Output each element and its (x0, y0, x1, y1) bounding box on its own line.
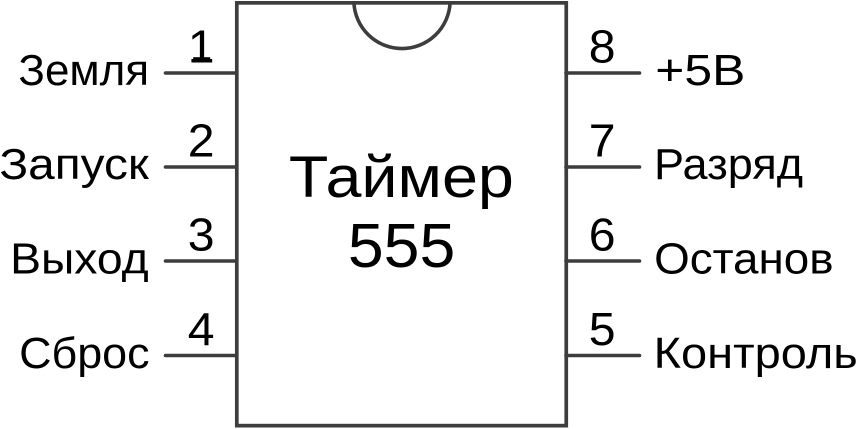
svg-text:Выход: Выход (10, 235, 149, 284)
svg-text:3: 3 (188, 208, 215, 260)
svg-text:Останов: Останов (654, 235, 834, 284)
svg-text:+5В: +5В (655, 46, 745, 95)
svg-text:8: 8 (589, 20, 616, 72)
svg-text:Контроль: Контроль (654, 329, 857, 378)
svg-text:4: 4 (188, 303, 215, 355)
svg-text:2: 2 (188, 114, 215, 166)
svg-text:6: 6 (589, 208, 616, 260)
svg-text:Земля: Земля (18, 46, 149, 95)
svg-text:Таймер: Таймер (289, 145, 514, 210)
svg-text:1: 1 (188, 20, 215, 72)
svg-text:7: 7 (589, 114, 616, 166)
svg-text:5: 5 (589, 303, 616, 355)
svg-text:Разряд: Разряд (654, 140, 803, 189)
svg-text:Сброс: Сброс (19, 329, 150, 378)
svg-text:Запуск: Запуск (0, 140, 150, 189)
svg-text:555: 555 (348, 212, 456, 281)
